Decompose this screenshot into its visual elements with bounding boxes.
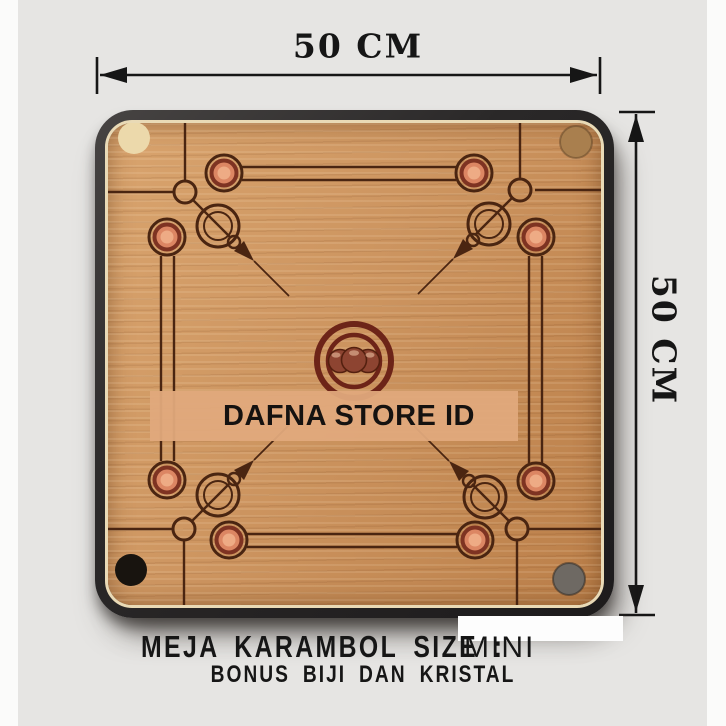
board-graphics — [108, 123, 601, 605]
width-dimension-label: 50 CM — [293, 27, 423, 66]
baseline-right — [518, 219, 554, 499]
corner-pocket-top-left — [118, 123, 150, 154]
baseline-left — [149, 219, 185, 498]
product-photo: 50 CM 50 CM — [0, 0, 726, 726]
baseline-top — [206, 155, 492, 191]
watermark-band: DAFNA STORE ID — [150, 391, 518, 441]
caption-size-value: MINI — [464, 631, 535, 665]
right-margin-strip — [707, 0, 726, 726]
corner-pocket-top-right — [560, 126, 592, 158]
caption-subtitle: BONUS BIJI DAN KRISTAL — [211, 661, 516, 689]
board-surface — [108, 123, 601, 605]
caption-title: MEJA KARAMBOL SIZE : — [141, 629, 504, 665]
watermark-text: DAFNA STORE ID — [150, 391, 518, 441]
corner-pocket-bottom-left — [115, 554, 147, 586]
left-margin-strip — [0, 0, 18, 726]
corner-pocket-bottom-right — [553, 563, 585, 595]
height-dimension-label: 50 CM — [645, 275, 684, 405]
center-circle — [317, 324, 391, 398]
carrom-board — [95, 110, 614, 618]
baseline-bottom — [211, 522, 493, 558]
